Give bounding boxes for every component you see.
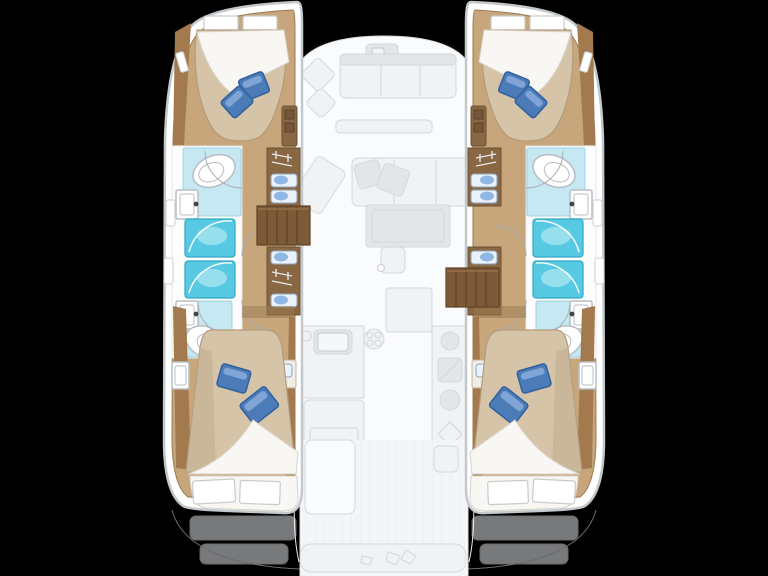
burner	[440, 390, 460, 410]
stern-bench	[300, 544, 466, 572]
lounge-backrest	[340, 54, 456, 65]
port-hull	[164, 2, 302, 569]
boat-floorplan	[0, 0, 768, 576]
deck-fitting	[378, 265, 385, 272]
companionway-steps-port	[257, 206, 310, 245]
helm-seat	[434, 446, 458, 472]
saloon-table	[366, 205, 450, 247]
stove-burners	[364, 329, 384, 349]
burner	[441, 332, 459, 350]
floorplan-canvas	[0, 0, 768, 576]
sideboard	[386, 288, 432, 332]
cockpit-table	[305, 440, 355, 514]
forward-bench	[336, 120, 432, 133]
aft-cockpit	[294, 440, 474, 576]
companionway-steps-starboard	[446, 268, 499, 307]
